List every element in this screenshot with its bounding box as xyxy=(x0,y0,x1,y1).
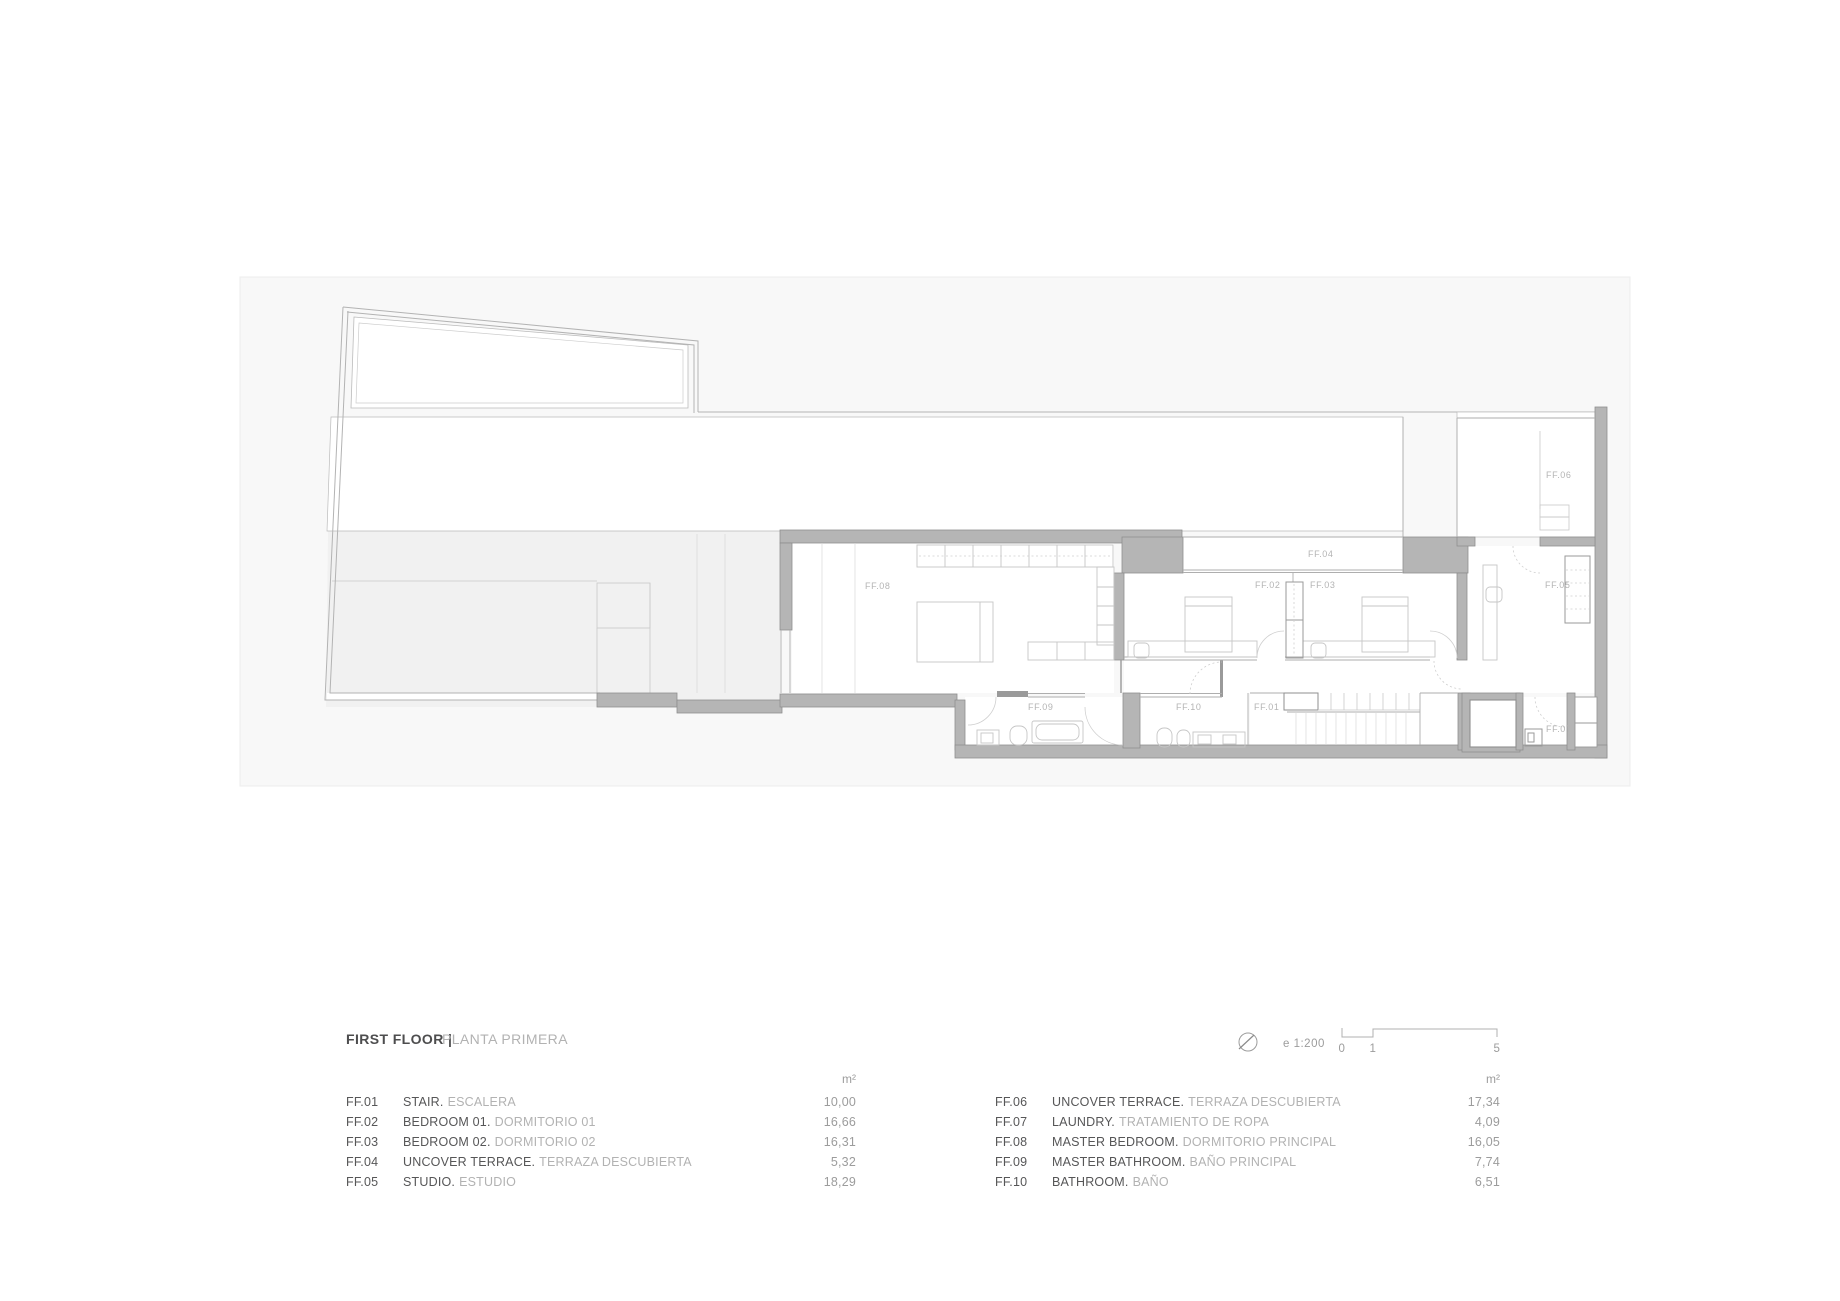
room-label-ff10: FF.10 xyxy=(1176,702,1202,712)
legend-area: 6,51 xyxy=(1475,1175,1500,1189)
legend-name: BATHROOM.BAÑO xyxy=(1052,1175,1169,1189)
scale-tick-1: 1 xyxy=(1370,1043,1377,1055)
room-label-ff06: FF.06 xyxy=(1546,470,1572,480)
title-block: FIRST FLOOR | PLANTA PRIMERA xyxy=(346,1031,568,1047)
legend-area: 4,09 xyxy=(1475,1115,1500,1129)
area-unit-header: m² xyxy=(1486,1072,1500,1086)
scale-block: e 1:200 0 1 5 xyxy=(1239,1028,1500,1055)
legend-code: FF.06 xyxy=(995,1095,1027,1109)
legend-name-en: BATHROOM. xyxy=(1052,1175,1129,1189)
room-label-ff09: FF.09 xyxy=(1028,702,1054,712)
legend-code: FF.01 xyxy=(346,1095,378,1109)
legend-name-en: STUDIO. xyxy=(403,1175,455,1189)
legend-name-es: TRATAMIENTO DE ROPA xyxy=(1119,1115,1270,1129)
stair-landing xyxy=(1284,693,1318,710)
door-leaf-ff09 xyxy=(997,691,1028,697)
legend-name-es: BAÑO xyxy=(1133,1175,1169,1189)
scale-bar xyxy=(1342,1028,1497,1037)
legend-name-en: BEDROOM 01. xyxy=(403,1115,491,1129)
room-label-ff07: FF.07 xyxy=(1546,724,1572,734)
legend-code: FF.08 xyxy=(995,1135,1027,1149)
room-label-ff05: FF.05 xyxy=(1545,580,1571,590)
legend-area: 17,34 xyxy=(1468,1095,1500,1109)
drawing-sheet: FF.08 FF.02 FF.03 FF.04 FF.05 FF.06 FF.0… xyxy=(0,0,1840,1301)
legend-name-es: DORMITORIO 02 xyxy=(495,1135,596,1149)
legend-code: FF.09 xyxy=(995,1155,1027,1169)
legend-name-es: TERRAZA DESCUBIERTA xyxy=(1188,1095,1341,1109)
room-label-ff03: FF.03 xyxy=(1310,580,1336,590)
door-jamb-ff10 xyxy=(1220,660,1223,697)
legend-name: MASTER BATHROOM.BAÑO PRINCIPAL xyxy=(1052,1155,1296,1169)
legend-code: FF.03 xyxy=(346,1135,378,1149)
legend-left: m² FF.01 STAIR.ESCALERA 10,00 FF.02 BEDR… xyxy=(346,1072,856,1189)
legend-name: BEDROOM 01.DORMITORIO 01 xyxy=(403,1115,596,1129)
legend-name-en: UNCOVER TERRACE. xyxy=(1052,1095,1184,1109)
terrace-deck xyxy=(326,531,780,707)
legend-name-en: UNCOVER TERRACE. xyxy=(403,1155,535,1169)
legend-name: STUDIO.ESTUDIO xyxy=(403,1175,516,1189)
legend-area: 16,05 xyxy=(1468,1135,1500,1149)
legend-name-en: MASTER BATHROOM. xyxy=(1052,1155,1186,1169)
legend-name-es: DORMITORIO 01 xyxy=(495,1115,596,1129)
scale-label: e 1:200 xyxy=(1283,1038,1325,1050)
legend-code: FF.05 xyxy=(346,1175,378,1189)
room-label-ff02: FF.02 xyxy=(1255,580,1281,590)
legend-name-es: ESTUDIO xyxy=(459,1175,516,1189)
legend-name: UNCOVER TERRACE.TERRAZA DESCUBIERTA xyxy=(1052,1095,1341,1109)
shaft xyxy=(1470,700,1516,747)
legend-area: 5,32 xyxy=(831,1155,856,1169)
legend-area: 10,00 xyxy=(824,1095,856,1109)
floor-plan-svg: FF.08 FF.02 FF.03 FF.04 FF.05 FF.06 FF.0… xyxy=(0,0,1840,1301)
area-unit-header: m² xyxy=(842,1072,856,1086)
legend-area: 7,74 xyxy=(1475,1155,1500,1169)
legend-right: m² FF.06 UNCOVER TERRACE.TERRAZA DESCUBI… xyxy=(995,1072,1500,1189)
legend-name-en: MASTER BEDROOM. xyxy=(1052,1135,1179,1149)
legend-name-es: BAÑO PRINCIPAL xyxy=(1190,1155,1297,1169)
legend-area: 18,29 xyxy=(824,1175,856,1189)
page-title-secondary: PLANTA PRIMERA xyxy=(442,1031,568,1047)
room-label-ff08: FF.08 xyxy=(865,581,891,591)
legend-code: FF.07 xyxy=(995,1115,1027,1129)
legend-code: FF.02 xyxy=(346,1115,378,1129)
legend-name-es: ESCALERA xyxy=(448,1095,517,1109)
scale-tick-5: 5 xyxy=(1494,1043,1501,1055)
scale-tick-0: 0 xyxy=(1339,1043,1346,1055)
legend-code: FF.04 xyxy=(346,1155,378,1169)
void-band xyxy=(327,417,1403,540)
legend-name: LAUNDRY.TRATAMIENTO DE ROPA xyxy=(1052,1115,1270,1129)
room-label-ff04: FF.04 xyxy=(1308,549,1334,559)
legend-code: FF.10 xyxy=(995,1175,1027,1189)
legend-name: UNCOVER TERRACE.TERRAZA DESCUBIERTA xyxy=(403,1155,692,1169)
legend-name: MASTER BEDROOM.DORMITORIO PRINCIPAL xyxy=(1052,1135,1336,1149)
legend-area: 16,66 xyxy=(824,1115,856,1129)
legend-name-en: LAUNDRY. xyxy=(1052,1115,1115,1129)
legend-name: BEDROOM 02.DORMITORIO 02 xyxy=(403,1135,596,1149)
storage-cells xyxy=(1575,697,1597,747)
legend-area: 16,31 xyxy=(824,1135,856,1149)
legend-name-es: DORMITORIO PRINCIPAL xyxy=(1183,1135,1337,1149)
north-arrow-icon xyxy=(1239,1033,1257,1051)
legend-name: STAIR.ESCALERA xyxy=(403,1095,516,1109)
room-label-ff01: FF.01 xyxy=(1254,702,1280,712)
page-title: FIRST FLOOR | xyxy=(346,1031,452,1047)
legend-name-en: BEDROOM 02. xyxy=(403,1135,491,1149)
north-arrow-needle xyxy=(1239,1035,1254,1049)
legend-name-es: TERRAZA DESCUBIERTA xyxy=(539,1155,692,1169)
legend-name-en: STAIR. xyxy=(403,1095,444,1109)
